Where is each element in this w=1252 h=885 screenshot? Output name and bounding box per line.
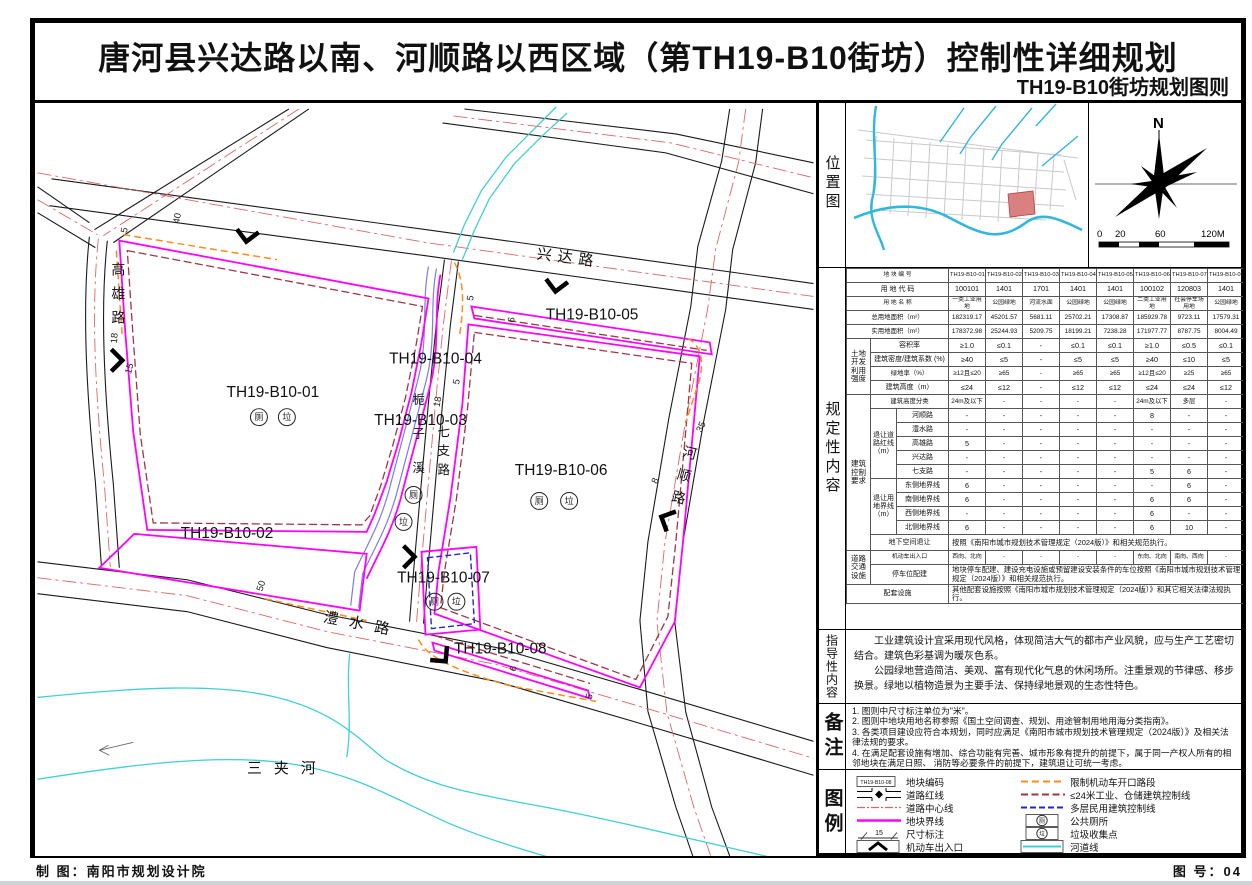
value-cell: -	[1023, 423, 1060, 437]
value-cell: TH19-B10-05	[1097, 269, 1134, 283]
flow-arrow	[99, 742, 133, 755]
value-cell: ≤24	[1134, 381, 1171, 395]
value-cell: -	[1060, 437, 1097, 451]
value-cell: -	[949, 423, 986, 437]
value-cell: 西向、北向	[949, 551, 986, 565]
sheet-number: 图 号：04	[1173, 861, 1242, 880]
table-row: 北侧地界线6----610-	[847, 521, 1244, 535]
row-label-cell: 容积率	[871, 339, 949, 353]
value-cell: ≥1.0	[1134, 339, 1171, 353]
road-centerlines	[38, 109, 814, 856]
value-span-cell: 其他配套设施按照《南阳市城市规划技术管理规定（2024版）》和其它相关法律法规执…	[949, 584, 1244, 604]
value-cell: 6	[1171, 465, 1208, 479]
table-row: 建筑高度（m）≤24≤12-≤12≤12≤24≤24≤12	[847, 381, 1244, 395]
section-label-guidance: 指导性内容	[819, 630, 845, 703]
row-label-cell: 建筑密度/建筑系数 (%)	[871, 353, 949, 367]
value-cell: 1401	[986, 283, 1023, 297]
value-cell: 5681.11	[1023, 311, 1060, 325]
value-cell: -	[1023, 381, 1060, 395]
legend-item-toilet: 厕 公共厕所	[1020, 814, 1239, 827]
entrance-chevrons	[111, 229, 676, 668]
table-row: 西侧地界线-----6--	[847, 507, 1244, 521]
entrance-legend-icon	[856, 840, 902, 853]
value-cell: 1401	[1097, 283, 1134, 297]
value-cell: 公园绿地	[1060, 297, 1097, 311]
table-row: 七支路-----56-	[847, 465, 1244, 479]
value-cell: -	[986, 507, 1023, 521]
svg-text:20: 20	[1115, 229, 1126, 240]
svg-text:垃: 垃	[399, 516, 408, 527]
value-cell: 25244.93	[986, 325, 1023, 339]
group-label-cell: 土地开发利用强度	[847, 339, 871, 395]
value-cell: ≤5	[1208, 353, 1244, 367]
table-row: 建筑密度/建筑系数 (%)≥40≤5-≤5≤5≥40≤10≤5	[847, 353, 1244, 367]
location-compass-panel: N	[1088, 100, 1243, 267]
value-cell: -	[1208, 423, 1244, 437]
section-label-legend: 图例	[819, 770, 845, 856]
value-cell: -	[1134, 451, 1171, 465]
restricted-line-icon	[1020, 775, 1066, 788]
road-label-qizhi: 七支路	[437, 425, 450, 477]
table-row: 停车位配建地块停车配建、建设充电设施或预留建设安装条件的车位按照《南阳市城市规划…	[847, 565, 1244, 585]
value-cell: ≤0.1	[1060, 339, 1097, 353]
road-lishui	[38, 562, 814, 742]
location-map-svg	[846, 100, 1088, 267]
legend-item-centerline: 道路中心线	[856, 801, 1020, 814]
drafting-credit: 制 图：南阳市规划设计院	[36, 864, 207, 879]
section-regulatory: 规定性内容 地 块 编 号TH19-B10-01TH19-B10-02TH19-…	[819, 268, 1243, 630]
row-label-cell: 实用地面积（m²）	[847, 325, 949, 339]
table-row: 用 地 名 称一类工业用地公园绿地河流水面公园绿地公园绿地二类工业用地社会停车场…	[847, 297, 1244, 311]
value-cell: -	[1023, 521, 1060, 535]
value-cell: -	[1208, 479, 1244, 493]
value-cell: ≤24	[1171, 381, 1208, 395]
value-cell: 7238.28	[1097, 325, 1134, 339]
section-label-notes: 备注	[819, 704, 845, 769]
compass-rose-icon	[1115, 134, 1207, 219]
value-cell: -	[986, 437, 1023, 451]
value-cell: -	[1023, 367, 1060, 381]
row-label-cell: 停车位配建	[871, 565, 949, 585]
value-cell: 二类工业用地	[1134, 297, 1171, 311]
boundary-plot-02	[99, 534, 366, 611]
row-label-cell: 配套设施	[847, 584, 949, 604]
row-label-cell: 河顺路	[897, 409, 949, 423]
location-city-map[interactable]	[846, 100, 1088, 267]
value-cell: -	[949, 507, 986, 521]
road-label-gaoxiong: 高雄路	[111, 262, 125, 326]
value-cell: 24m及以下	[1134, 395, 1171, 409]
table-row: 地下空间退让按照《南阳市城市规划技术管理规定（2024版）》和相关规范执行。	[847, 535, 1244, 551]
value-cell: 6	[1134, 521, 1171, 535]
value-cell: ≥65	[1060, 367, 1097, 381]
row-label-cell: 建筑高度分类	[871, 395, 949, 409]
value-cell: ≥12且≤20	[1134, 367, 1171, 381]
road-gaoxiong	[86, 237, 102, 566]
value-cell: ≥65	[1208, 367, 1244, 381]
value-cell: -	[986, 423, 1023, 437]
city-rivers	[854, 104, 1082, 250]
value-cell: 10	[1171, 521, 1208, 535]
main-map-svg: 厕垃 厕垃 厕垃 厕垃 TH19-B10-01 TH19-B10-02 TH19…	[35, 103, 816, 856]
river-line-icon	[1020, 840, 1066, 853]
value-cell: -	[1097, 551, 1134, 565]
value-cell: -	[1023, 437, 1060, 451]
value-cell: 8	[1134, 409, 1171, 423]
value-cell: -	[1060, 521, 1097, 535]
value-cell: 公园绿地	[1097, 297, 1134, 311]
footer-strip: 制 图：南阳市规划设计院 图 号：04	[36, 861, 1242, 880]
value-cell: 5	[1134, 465, 1171, 479]
water-label-sanjiahe: 三夹河	[247, 760, 328, 777]
value-cell: 6	[949, 493, 986, 507]
value-cell: TH19-B10-04	[1060, 269, 1097, 283]
title-block: 唐河县兴达路以南、河顺路以西区域（第TH19-B10街坊）控制性详细规划 TH1…	[35, 23, 1241, 100]
section-notes: 备注 1. 图则中尺寸标注单位为"米"。 2. 图则中地块用地名称参照《国土空间…	[819, 704, 1243, 770]
value-cell: 公园绿地	[1208, 297, 1244, 311]
value-cell: 1701	[1023, 283, 1060, 297]
north-label: N	[1153, 115, 1164, 132]
svg-text:厕: 厕	[409, 490, 418, 500]
row-label-cell: 西侧地界线	[897, 507, 949, 521]
sheet-subtitle: TH19-B10街坊规划图则	[1017, 71, 1229, 100]
road-label-lishui: 澧水路	[322, 609, 402, 641]
regulatory-table-body: 地 块 编 号TH19-B10-01TH19-B10-02TH19-B10-03…	[847, 269, 1244, 604]
entrance-icon	[404, 546, 415, 568]
guidance-paragraph: 工业建筑设计宜采用现代风格，体现简洁大气的都市产业风貌，应与生产工艺密切结合。建…	[854, 634, 1235, 664]
value-cell: 多层	[1171, 395, 1208, 409]
value-cell: ≤5	[1060, 353, 1097, 367]
row-label-cell: 高雄路	[897, 437, 949, 451]
svg-text:厕: 厕	[254, 412, 263, 422]
plot-label-08: TH19-B10-08	[454, 641, 547, 658]
note-item: 5. 河道线以实测为准。	[852, 768, 1237, 769]
dim: 6	[506, 316, 518, 323]
value-cell: 17579.31	[1208, 311, 1244, 325]
svg-text:15: 15	[875, 830, 883, 837]
value-cell: -	[1060, 395, 1097, 409]
compass-svg: N	[1089, 100, 1243, 267]
value-cell: 9723.11	[1171, 311, 1208, 325]
group-label-cell: 道路交通设施	[847, 551, 871, 585]
value-cell: -	[986, 551, 1023, 565]
value-cell: 6	[1134, 493, 1171, 507]
value-cell: -	[1023, 551, 1060, 565]
value-cell: -	[1060, 507, 1097, 521]
value-cell: ≤0.1	[1208, 339, 1244, 353]
scale-bar: 0 20 60 120M	[1097, 229, 1229, 247]
value-cell: ≤12	[1208, 381, 1244, 395]
table-row: 绿地率（%）≥12且≤20≥65-≥65≥65≥12且≤20≥25≥65	[847, 367, 1244, 381]
value-cell: 45201.57	[986, 311, 1023, 325]
value-cell: -	[1208, 409, 1244, 423]
value-cell: -	[1023, 493, 1060, 507]
value-cell: TH19-B10-01	[949, 269, 986, 283]
plot-label-05: TH19-B10-05	[546, 306, 639, 323]
legend-item-restricted: 限制机动车开口路段	[1020, 775, 1239, 788]
entrance-icon	[235, 229, 258, 243]
section-legend: 图例 TH19-B10-08 地块编码 道路红线	[819, 770, 1243, 856]
dim: 18	[432, 396, 445, 408]
section-label-regulatory: 规定性内容	[819, 268, 845, 629]
value-cell: -	[1097, 493, 1134, 507]
value-cell: 25702.21	[1060, 311, 1097, 325]
value-cell: -	[1134, 479, 1171, 493]
row-label-cell: 建筑高度（m）	[871, 381, 949, 395]
plot-label-02: TH19-B10-02	[181, 525, 274, 542]
row-label-cell: 兴达路	[897, 451, 949, 465]
group-label-cell: 建筑控制要求	[847, 395, 871, 551]
value-cell: 1401	[1060, 283, 1097, 297]
value-cell: ≤0.5	[1171, 339, 1208, 353]
road-label-xingda: 兴达路	[536, 246, 600, 271]
plot-label-06: TH19-B10-06	[515, 462, 608, 479]
legend-item-garbage: 垃 垃圾收集点	[1020, 827, 1239, 840]
value-cell: -	[1171, 437, 1208, 451]
svg-text:TH19-B10-08: TH19-B10-08	[860, 780, 891, 786]
value-cell: 南向、西向	[1171, 551, 1208, 565]
water-label-zhizixi: 栀子溪	[413, 393, 426, 475]
value-cell: -	[986, 409, 1023, 423]
row-label-cell: 东侧地界线	[897, 479, 949, 493]
table-row: 土地开发利用强度容积率≥1.0≤0.1-≤0.1≤0.1≥1.0≤0.5≤0.1	[847, 339, 1244, 353]
value-cell: 100102	[1134, 283, 1171, 297]
value-cell: -	[1134, 423, 1171, 437]
table-row: 兴达路--------	[847, 451, 1244, 465]
legend-item-industrial-ctl: ≤24米工业、仓储建筑控制线	[1020, 788, 1239, 801]
row-label-cell: 澧水路	[897, 423, 949, 437]
value-cell: 河流水面	[1023, 297, 1060, 311]
legend-item-entrance: 机动车出入口	[856, 840, 1020, 853]
value-cell: 171977.77	[1134, 325, 1171, 339]
value-cell: 8004.49	[1208, 325, 1244, 339]
row-label-cell: 地下空间退让	[871, 535, 949, 551]
value-cell: ≥1.0	[949, 339, 986, 353]
legend-item-road-redline: 道路红线	[856, 788, 1020, 801]
value-cell: ≤12	[1060, 381, 1097, 395]
svg-text:厕: 厕	[430, 597, 439, 607]
value-cell: 18199.21	[1060, 325, 1097, 339]
value-cell: ≤10	[1171, 353, 1208, 367]
value-cell: -	[1060, 493, 1097, 507]
value-cell: -	[1060, 409, 1097, 423]
location-highlight-block	[1008, 191, 1035, 217]
svg-text:厕: 厕	[535, 496, 544, 506]
dimension-labels: 40 5 18 15 5 18 5 6 35 8 50 6 5	[109, 212, 709, 701]
value-cell: -	[1023, 479, 1060, 493]
note-item: 1. 图则中尺寸标注单位为"米"。	[852, 706, 1237, 716]
value-cell: 120803	[1171, 283, 1208, 297]
value-cell: ≤12	[986, 381, 1023, 395]
value-cell: -	[1208, 521, 1244, 535]
value-cell: 6	[1171, 479, 1208, 493]
value-cell: -	[1171, 451, 1208, 465]
value-cell: -	[986, 451, 1023, 465]
value-cell: 6	[949, 521, 986, 535]
value-cell: 东向、北向	[1134, 551, 1171, 565]
section-location: 位置图	[819, 100, 1243, 268]
value-cell: -	[1097, 409, 1134, 423]
value-cell: -	[1097, 437, 1134, 451]
value-cell: -	[986, 521, 1023, 535]
value-cell: -	[1208, 465, 1244, 479]
civil-control-icon	[1020, 801, 1066, 814]
value-cell: ≤0.1	[986, 339, 1023, 353]
value-cell: -	[1097, 507, 1134, 521]
value-cell: 178372.98	[949, 325, 986, 339]
table-row: 南侧地界线6----66-	[847, 493, 1244, 507]
value-cell: -	[949, 409, 986, 423]
dim: 5	[119, 227, 131, 234]
value-cell: -	[1134, 437, 1171, 451]
value-cell: 185929.78	[1134, 311, 1171, 325]
table-row: 地 块 编 号TH19-B10-01TH19-B10-02TH19-B10-03…	[847, 269, 1244, 283]
row-label-cell: 用 地 代 码	[847, 283, 949, 297]
plot-boundary-icon	[856, 814, 902, 827]
row-label-cell: 地 块 编 号	[847, 269, 949, 283]
note-item: 2. 图则中地块用地名称参照《国土空间调查、规划、用途管制用地用海分类指南》。	[852, 716, 1237, 726]
plot-label-01: TH19-B10-01	[227, 384, 320, 401]
plot-labels: TH19-B10-01 TH19-B10-02 TH19-B10-03 TH19…	[181, 306, 639, 657]
main-map[interactable]: 厕垃 厕垃 厕垃 厕垃 TH19-B10-01 TH19-B10-02 TH19…	[35, 103, 816, 856]
dim: 40	[171, 212, 184, 224]
svg-text:0: 0	[1097, 229, 1102, 240]
road-redline-icon	[856, 788, 902, 801]
row-label-cell: 绿地率（%）	[871, 367, 949, 381]
value-cell: -	[1171, 409, 1208, 423]
entrance-icon	[545, 279, 568, 293]
plot-label-04: TH19-B10-04	[389, 350, 482, 367]
industrial-control-icon	[1020, 788, 1066, 801]
table-row: 道路交通设施机动车出入口西向、北向----东向、北向南向、西向-	[847, 551, 1244, 565]
value-cell: -	[1208, 551, 1244, 565]
value-cell: 5209.75	[1023, 325, 1060, 339]
value-cell: -	[1060, 465, 1097, 479]
value-cell: TH19-B10-03	[1023, 269, 1060, 283]
subgroup-label-cell: 退让道路红线（m）	[871, 409, 897, 479]
dimension-icon: 15	[856, 827, 902, 840]
value-cell: -	[1208, 507, 1244, 521]
value-cell: -	[986, 493, 1023, 507]
svg-text:垃: 垃	[565, 495, 574, 506]
row-label-cell: 南侧地界线	[897, 493, 949, 507]
dim: 5	[465, 294, 477, 301]
svg-text:垃: 垃	[282, 411, 291, 422]
boundary-plot-07	[422, 547, 481, 635]
value-cell: TH19-B10-06	[1134, 269, 1171, 283]
dim: 5	[451, 378, 463, 385]
value-cell: 6	[1171, 493, 1208, 507]
regulatory-table: 地 块 编 号TH19-B10-01TH19-B10-02TH19-B10-03…	[846, 268, 1243, 604]
svg-text:120M: 120M	[1201, 229, 1225, 240]
value-cell: -	[949, 465, 986, 479]
dim: 6	[508, 665, 520, 673]
table-row: 退让用地界线（m）东侧地界线6-----6-	[847, 479, 1244, 493]
table-row: 高雄路5-------	[847, 437, 1244, 451]
value-cell: -	[1023, 507, 1060, 521]
entrance-icon	[657, 507, 676, 532]
guidance-paragraph: 公园绿地营造简洁、美观、富有现代化气息的休闲场所。注重景观的节律感、移步换景。绿…	[854, 664, 1235, 694]
value-cell: -	[1097, 395, 1134, 409]
legend-item-river: 河道线	[1020, 840, 1239, 853]
value-cell: -	[1208, 451, 1244, 465]
value-cell: ≥40	[949, 353, 986, 367]
value-cell: -	[1208, 437, 1244, 451]
value-cell: ≤24	[949, 381, 986, 395]
value-cell: -	[1023, 339, 1060, 353]
subgroup-label-cell: 退让用地界线（m）	[871, 479, 897, 535]
value-cell: ≥40	[1134, 353, 1171, 367]
table-row: 实用地面积（m²）178372.9825244.935209.7518199.2…	[847, 325, 1244, 339]
value-cell: ≤12	[1097, 381, 1134, 395]
row-label-cell: 七支路	[897, 465, 949, 479]
value-cell: -	[986, 479, 1023, 493]
note-item: 3. 各类项目建设应符合本规划，同时应满足《南阳市城市规划技术管理规定（2024…	[852, 727, 1237, 748]
value-cell: 5	[949, 437, 986, 451]
value-span-cell: 地块停车配建、建设充电设施或预留建设安装条件的车位按照《南阳市城市规划技术管理规…	[949, 565, 1244, 585]
value-cell: TH19-B10-08	[1208, 269, 1244, 283]
value-cell: ≤5	[986, 353, 1023, 367]
legend-item-civil-ctl: 多层民用建筑控制线	[1020, 801, 1239, 814]
table-row: 建筑控制要求建筑高度分类24m及以下----24m及以下多层-	[847, 395, 1244, 409]
note-item: 4. 在满足配套设施有增加、综合功能有完善、城市形象有提升的前提下，属于同一产权…	[852, 748, 1237, 769]
value-cell: -	[1208, 395, 1244, 409]
legend-item-dimension: 15 尺寸标注	[856, 827, 1020, 840]
table-row: 配套设施其他配套设施按照《南阳市城市规划技术管理规定（2024版）》和其它相关法…	[847, 584, 1244, 604]
value-cell: ≥25	[1171, 367, 1208, 381]
value-cell: TH19-B10-02	[986, 269, 1023, 283]
value-cell: -	[1023, 451, 1060, 465]
value-span-cell: 按照《南阳市城市规划技术管理规定（2024版）》和相关规范执行。	[949, 535, 1244, 551]
entrance-icon	[111, 349, 122, 371]
value-cell: 6	[949, 479, 986, 493]
value-cell: 公园绿地	[986, 297, 1023, 311]
table-row: 总用地面积（m²）182319.1745201.575681.1125702.2…	[847, 311, 1244, 325]
value-cell: ≥65	[986, 367, 1023, 381]
value-cell: 8787.75	[1171, 325, 1208, 339]
row-label-cell: 机动车出入口	[871, 551, 949, 565]
value-cell: 1401	[1208, 283, 1244, 297]
value-cell: -	[1097, 451, 1134, 465]
value-cell: -	[1060, 551, 1097, 565]
road-edges	[38, 109, 814, 856]
value-cell: -	[1097, 465, 1134, 479]
svg-text:60: 60	[1155, 229, 1166, 240]
value-cell: -	[1208, 493, 1244, 507]
table-row: 澧水路--------	[847, 423, 1244, 437]
value-cell: -	[986, 395, 1023, 409]
dim: 18	[109, 332, 121, 343]
value-cell: -	[1097, 479, 1134, 493]
legend-item-plot-boundary: 地块界线	[856, 814, 1020, 827]
section-guidance: 指导性内容 工业建筑设计宜采用现代风格，体现简洁大气的都市产业风貌，应与生产工艺…	[819, 630, 1243, 704]
centerline-icon	[856, 801, 902, 814]
value-cell: -	[1023, 395, 1060, 409]
legend-item-plot-code: TH19-B10-08 地块编码	[856, 775, 1020, 788]
value-cell: -	[1023, 353, 1060, 367]
page-bottom-edge	[0, 881, 1252, 885]
value-cell: 100101	[949, 283, 986, 297]
section-label-location: 位置图	[819, 100, 845, 267]
value-cell: -	[949, 451, 986, 465]
value-cell: -	[1060, 451, 1097, 465]
value-cell: 24m及以下	[949, 395, 986, 409]
value-cell: -	[1171, 423, 1208, 437]
row-label-cell: 北侧地界线	[897, 521, 949, 535]
value-cell: 182319.17	[949, 311, 986, 325]
row-label-cell: 总用地面积（m²）	[847, 311, 949, 325]
value-cell: -	[1171, 507, 1208, 521]
